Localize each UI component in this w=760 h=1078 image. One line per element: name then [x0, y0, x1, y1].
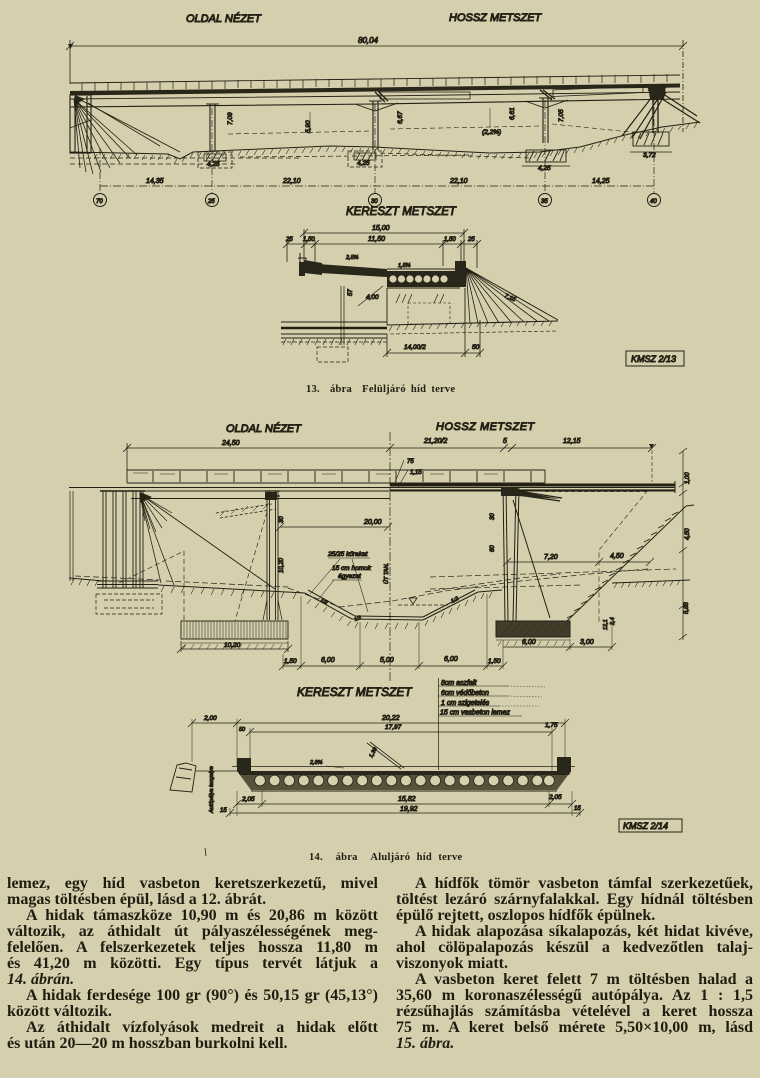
- svg-text:5,88: 5,88: [684, 602, 690, 614]
- svg-text:OLDAL NÉZET: OLDAL NÉZET: [186, 12, 262, 25]
- svg-text:25: 25: [285, 237, 293, 243]
- svg-text:15 cm vasbeton lemez: 15 cm vasbeton lemez: [440, 710, 511, 717]
- svg-text:2,05: 2,05: [548, 794, 562, 801]
- svg-text:4,25: 4,25: [357, 160, 370, 167]
- svg-text:7,15: 7,15: [503, 293, 517, 303]
- svg-text:ÚT TAN.: ÚT TAN.: [383, 563, 390, 584]
- svg-text:14,25: 14,25: [592, 178, 610, 185]
- svg-text:14,35: 14,35: [146, 178, 164, 185]
- svg-text:6,61: 6,61: [509, 107, 516, 120]
- svg-text:4,25: 4,25: [207, 161, 220, 168]
- svg-text:35: 35: [541, 199, 548, 205]
- svg-text:6,00: 6,00: [321, 657, 335, 664]
- svg-text:30: 30: [279, 516, 285, 523]
- svg-text:25: 25: [207, 199, 215, 205]
- svg-text:Autópálya tengelye: Autópálya tengelye: [209, 766, 215, 814]
- svg-text:10,20: 10,20: [224, 642, 241, 649]
- svg-text:22,10: 22,10: [282, 178, 301, 185]
- svg-text:19,92: 19,92: [400, 806, 418, 813]
- svg-text:11,50: 11,50: [368, 236, 385, 243]
- svg-text:4,00: 4,00: [366, 294, 379, 301]
- svg-text:21,20/2: 21,20/2: [423, 438, 447, 445]
- svg-text:7,05: 7,05: [558, 109, 565, 122]
- svg-text:75: 75: [407, 459, 414, 465]
- svg-text:KERESZT METSZET: KERESZT METSZET: [346, 206, 457, 218]
- svg-text:20,00: 20,00: [363, 519, 382, 526]
- svg-text:15: 15: [574, 806, 581, 812]
- svg-text:22,10: 22,10: [449, 178, 468, 185]
- svg-text:30: 30: [371, 199, 378, 205]
- svg-text:10,20: 10,20: [279, 557, 285, 573]
- svg-text:2,4: 2,4: [610, 617, 616, 626]
- svg-text:OLDAL NÉZET: OLDAL NÉZET: [226, 422, 302, 435]
- svg-text:15,00: 15,00: [372, 225, 390, 232]
- svg-text:1,50: 1,50: [284, 658, 297, 665]
- svg-text:ágyazat: ágyazat: [338, 573, 362, 580]
- svg-text:17,97: 17,97: [385, 724, 402, 731]
- svg-text:80,04: 80,04: [358, 36, 379, 45]
- svg-text:25: 25: [467, 237, 475, 243]
- svg-text:HOSSZ METSZET: HOSSZ METSZET: [436, 421, 536, 433]
- svg-text:2,00: 2,00: [203, 715, 217, 722]
- svg-text:60: 60: [490, 545, 496, 552]
- svg-text:1,00: 1,00: [685, 472, 691, 484]
- svg-text:70: 70: [96, 199, 103, 205]
- svg-text:KMSZ 2/13: KMSZ 2/13: [631, 354, 676, 364]
- svg-text:5,90: 5,90: [305, 120, 312, 133]
- svg-text:15: 15: [220, 808, 227, 814]
- svg-text:5: 5: [503, 438, 507, 445]
- svg-text:2,05: 2,05: [241, 796, 255, 803]
- svg-text:1,75: 1,75: [545, 722, 558, 729]
- svg-text:6,00: 6,00: [444, 656, 458, 663]
- svg-text:5,00: 5,00: [380, 657, 394, 664]
- svg-text:30: 30: [490, 513, 496, 520]
- svg-text:6,67: 6,67: [397, 111, 404, 124]
- svg-text:57: 57: [348, 289, 354, 296]
- svg-text:14,00/2: 14,00/2: [404, 344, 426, 351]
- svg-text:1:2: 1:2: [450, 596, 460, 605]
- svg-text:12,1: 12,1: [603, 619, 609, 630]
- svg-text:1,5%: 1,5%: [398, 263, 411, 269]
- svg-text:2,5%: 2,5%: [345, 255, 359, 261]
- svg-text:4,25: 4,25: [538, 165, 551, 172]
- svg-text:2,8%: 2,8%: [309, 760, 323, 766]
- svg-text:15,82: 15,82: [398, 796, 416, 803]
- svg-text:1,15: 1,15: [410, 470, 422, 476]
- svg-text:(2,2%): (2,2%): [482, 129, 501, 136]
- svg-text:4,50: 4,50: [610, 553, 624, 560]
- svg-text:50: 50: [239, 727, 246, 733]
- svg-text:15 cm homok: 15 cm homok: [332, 565, 372, 572]
- svg-text:4,50: 4,50: [685, 528, 691, 540]
- svg-text:1,50: 1,50: [303, 237, 315, 243]
- svg-text:HOSSZ METSZET: HOSSZ METSZET: [449, 12, 543, 24]
- svg-text:1,50: 1,50: [488, 658, 501, 665]
- svg-text:24,50: 24,50: [221, 440, 240, 447]
- svg-text:40: 40: [650, 199, 657, 205]
- svg-text:7,09: 7,09: [227, 112, 234, 125]
- svg-text:KERESZT METSZET: KERESZT METSZET: [297, 685, 413, 699]
- svg-text:6,00: 6,00: [522, 639, 536, 646]
- svg-text:20,22: 20,22: [381, 715, 400, 722]
- svg-text:1,50: 1,50: [444, 237, 456, 243]
- svg-text:25/25 kőrakat: 25/25 kőrakat: [327, 551, 369, 558]
- svg-text:7,20: 7,20: [544, 554, 558, 561]
- svg-text:KMSZ 2/14: KMSZ 2/14: [623, 821, 668, 831]
- svg-text:3,00: 3,00: [580, 639, 594, 646]
- svg-text:12,15: 12,15: [563, 438, 581, 445]
- svg-text:50: 50: [472, 344, 480, 351]
